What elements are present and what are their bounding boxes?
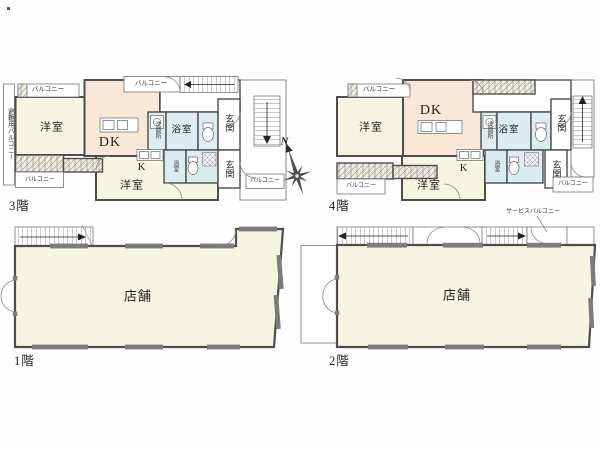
room-label-balcony-bottom-left-4f: バルコニー — [346, 183, 376, 189]
room-label-entrance1-4f: 玄関 — [557, 114, 566, 132]
room-label-shop-2f: 店舗 — [443, 289, 471, 302]
room-label-western2-3f: 洋室 — [120, 181, 144, 192]
floorplan-sheet: 避難用バルコニー バルコニー 洋室 DK バルコニー 洗面所 浴室 玄関 K 浴… — [0, 0, 600, 450]
room-label-bath2-4f: 浴室 — [493, 160, 499, 172]
floor-plan-4f — [337, 78, 594, 200]
room-label-bath-3f: 浴室 — [171, 126, 192, 136]
room-label-western1-4f: 洋室 — [359, 123, 383, 134]
room-label-balcony-bottom-right-3f: バルコニー — [250, 178, 280, 184]
floor-plan-1f — [1, 225, 284, 349]
room-label-balcony-top-center-3f: バルコニー — [135, 81, 167, 88]
room-label-evacuation-balcony-3f: 避難用バルコニー — [6, 108, 13, 160]
room-label-entrance2-3f: 玄関 — [225, 160, 234, 178]
room-label-kitchen-4f: K — [460, 164, 469, 175]
room-label-shop-1f: 店舗 — [124, 290, 152, 303]
room-label-balcony-top-left-3f: バルコニー — [32, 87, 64, 94]
room-label-dk-3f: DK — [99, 136, 121, 150]
room-label-washroom-4f: 洗面所 — [486, 121, 492, 139]
room-label-western2-4f: 洋室 — [417, 181, 441, 192]
floor-label-3f: 3階 — [9, 200, 30, 213]
room-label-service-balcony-2f: サービスバルコニー — [506, 209, 560, 215]
floor-label-1f: 1階 — [14, 355, 35, 368]
room-label-washroom-3f: 洗面所 — [154, 121, 160, 139]
room-label-dk-4f: DK — [420, 104, 442, 118]
room-label-bath-4f: 浴室 — [498, 126, 519, 136]
floor-plan-2f — [301, 216, 596, 349]
room-label-entrance2-4f: 玄関 — [552, 160, 561, 178]
room-label-bath2-3f: 浴室 — [172, 160, 178, 172]
room-label-kitchen-3f: K — [138, 163, 147, 174]
floorplan-drawing — [0, 0, 600, 450]
room-label-western1-3f: 洋室 — [40, 123, 64, 134]
room-label-balcony-top-left-4f: バルコニー — [363, 87, 395, 94]
floor-label-4f: 4階 — [329, 200, 350, 213]
room-label-entrance1-3f: 玄関 — [225, 114, 234, 132]
room-label-balcony-bottom-right-4f: バルコニー — [558, 181, 588, 187]
floor-label-2f: 2階 — [329, 355, 350, 368]
corner-mark — [7, 7, 10, 10]
compass-north-label: N — [281, 137, 290, 148]
room-label-balcony-bottom-left-3f: バルコニー — [25, 177, 55, 183]
